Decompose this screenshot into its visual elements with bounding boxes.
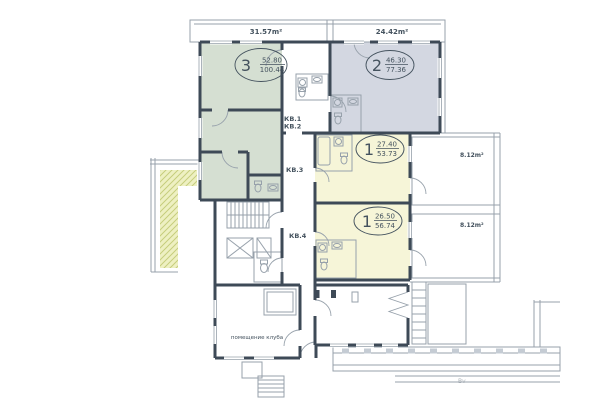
balcony-upper-area-label: 8.12m²	[460, 152, 484, 159]
svg-text:46.30: 46.30	[386, 57, 406, 65]
svg-text:2: 2	[372, 56, 382, 75]
unit-kv4-label: КВ.4	[289, 232, 307, 240]
svg-text:52.80: 52.80	[262, 57, 282, 65]
unit-kv2-label: КВ.2	[284, 123, 301, 131]
svg-text:26.50: 26.50	[375, 213, 395, 221]
ramp-hatch	[160, 170, 197, 268]
terrace-left-area-label: 31.57m²	[250, 28, 283, 36]
double-door	[389, 292, 408, 318]
svg-text:53.73: 53.73	[377, 150, 397, 158]
watermark-text: Bv	[458, 378, 466, 385]
floor-plan-svg: 31.57m² 24.42m² 8.12m² 8.12m² 3 52.80 10…	[0, 0, 601, 400]
svg-text:100.44: 100.44	[260, 66, 285, 74]
floor-plan-image: 31.57m² 24.42m² 8.12m² 8.12m² 3 52.80 10…	[0, 0, 601, 400]
svg-text:77.36: 77.36	[386, 66, 407, 74]
svg-text:56.74: 56.74	[375, 222, 396, 230]
unit-kv3-label: КВ.3	[286, 166, 303, 174]
svg-text:1: 1	[364, 140, 374, 159]
svg-text:27.40: 27.40	[377, 141, 397, 149]
svg-text:3: 3	[241, 56, 251, 75]
club-room-label: помещение клуба	[231, 335, 283, 341]
terrace-right-area-label: 24.42m²	[376, 28, 409, 36]
svg-text:1: 1	[362, 212, 372, 231]
balcony-lower-area-label: 8.12m²	[460, 222, 484, 229]
